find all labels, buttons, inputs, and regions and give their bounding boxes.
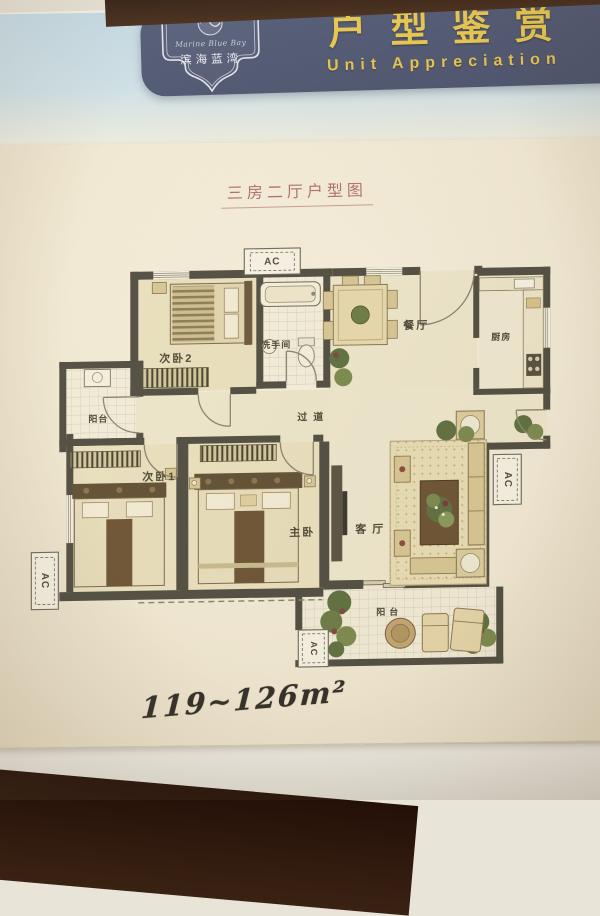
room-label-bed1: 次卧1 — [142, 468, 176, 485]
ac-label-bottom: AC — [298, 630, 328, 668]
room-label-bed2: 次卧2 — [159, 350, 193, 367]
room-label-living: 客厅 — [355, 520, 389, 537]
room-label-bathroom: 洗手间 — [261, 338, 291, 352]
room-label-balcony-left: 阳台 — [88, 412, 108, 425]
floorplan: 次卧2 洗手间 餐厅 厨房 阳台 过道 次卧1 主卧 客厅 阳台 AC AC A… — [26, 235, 571, 700]
ac-label-top: AC — [244, 248, 300, 275]
ac-label-left: AC — [31, 552, 58, 609]
room-label-balcony-bottom: 阳台 — [376, 605, 402, 618]
floorplan-sheet: 三房二厅户型图 — [0, 138, 600, 748]
ac-label-right: AC — [493, 454, 521, 504]
room-label-corridor: 过道 — [297, 408, 329, 424]
room-label-master: 主卧 — [289, 524, 315, 540]
room-label-kitchen: 厨房 — [491, 330, 511, 343]
room-label-dining: 餐厅 — [403, 317, 429, 333]
photo-of-floorplan-brochure: { "header": { "brand_script": "Marine Bl… — [0, 0, 600, 800]
plan-title: 三房二厅户型图 — [221, 176, 374, 208]
